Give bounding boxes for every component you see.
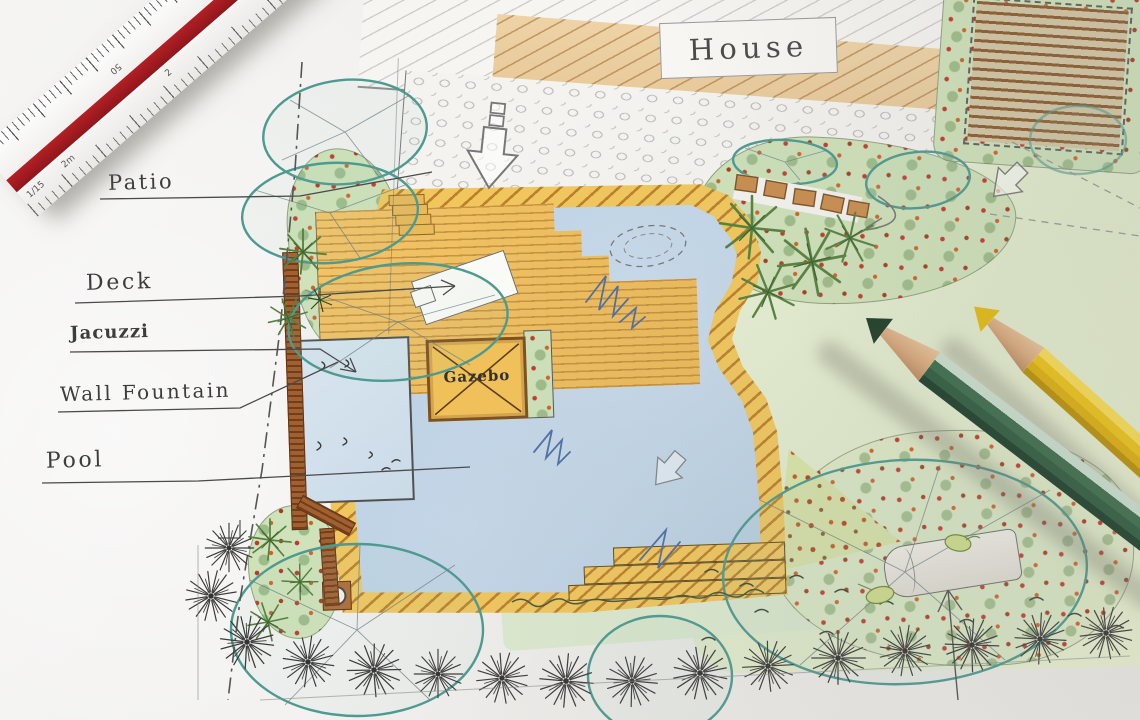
house-label: House — [688, 29, 809, 67]
photo-of-landscape-plan: Gazebo — [0, 0, 1140, 720]
water-scribbles — [534, 276, 680, 568]
deck-label: Deck — [86, 269, 154, 296]
patio-arrow-icon — [464, 101, 523, 191]
lawn-arrow-icon — [982, 156, 1035, 209]
dashed-spa-circle-inner — [623, 231, 674, 261]
house-label-box: House — [659, 17, 838, 79]
jacuzzi-label: Jacuzzi — [70, 321, 150, 344]
lawn-arrow-icon — [643, 445, 692, 495]
wall-fountain-label: Wall Fountain — [60, 378, 231, 406]
ruler-mark: 50 — [108, 61, 123, 76]
dashed-spa-circle — [608, 221, 689, 271]
patio-label: Patio — [108, 169, 175, 195]
pool-label: Pool — [46, 447, 105, 474]
